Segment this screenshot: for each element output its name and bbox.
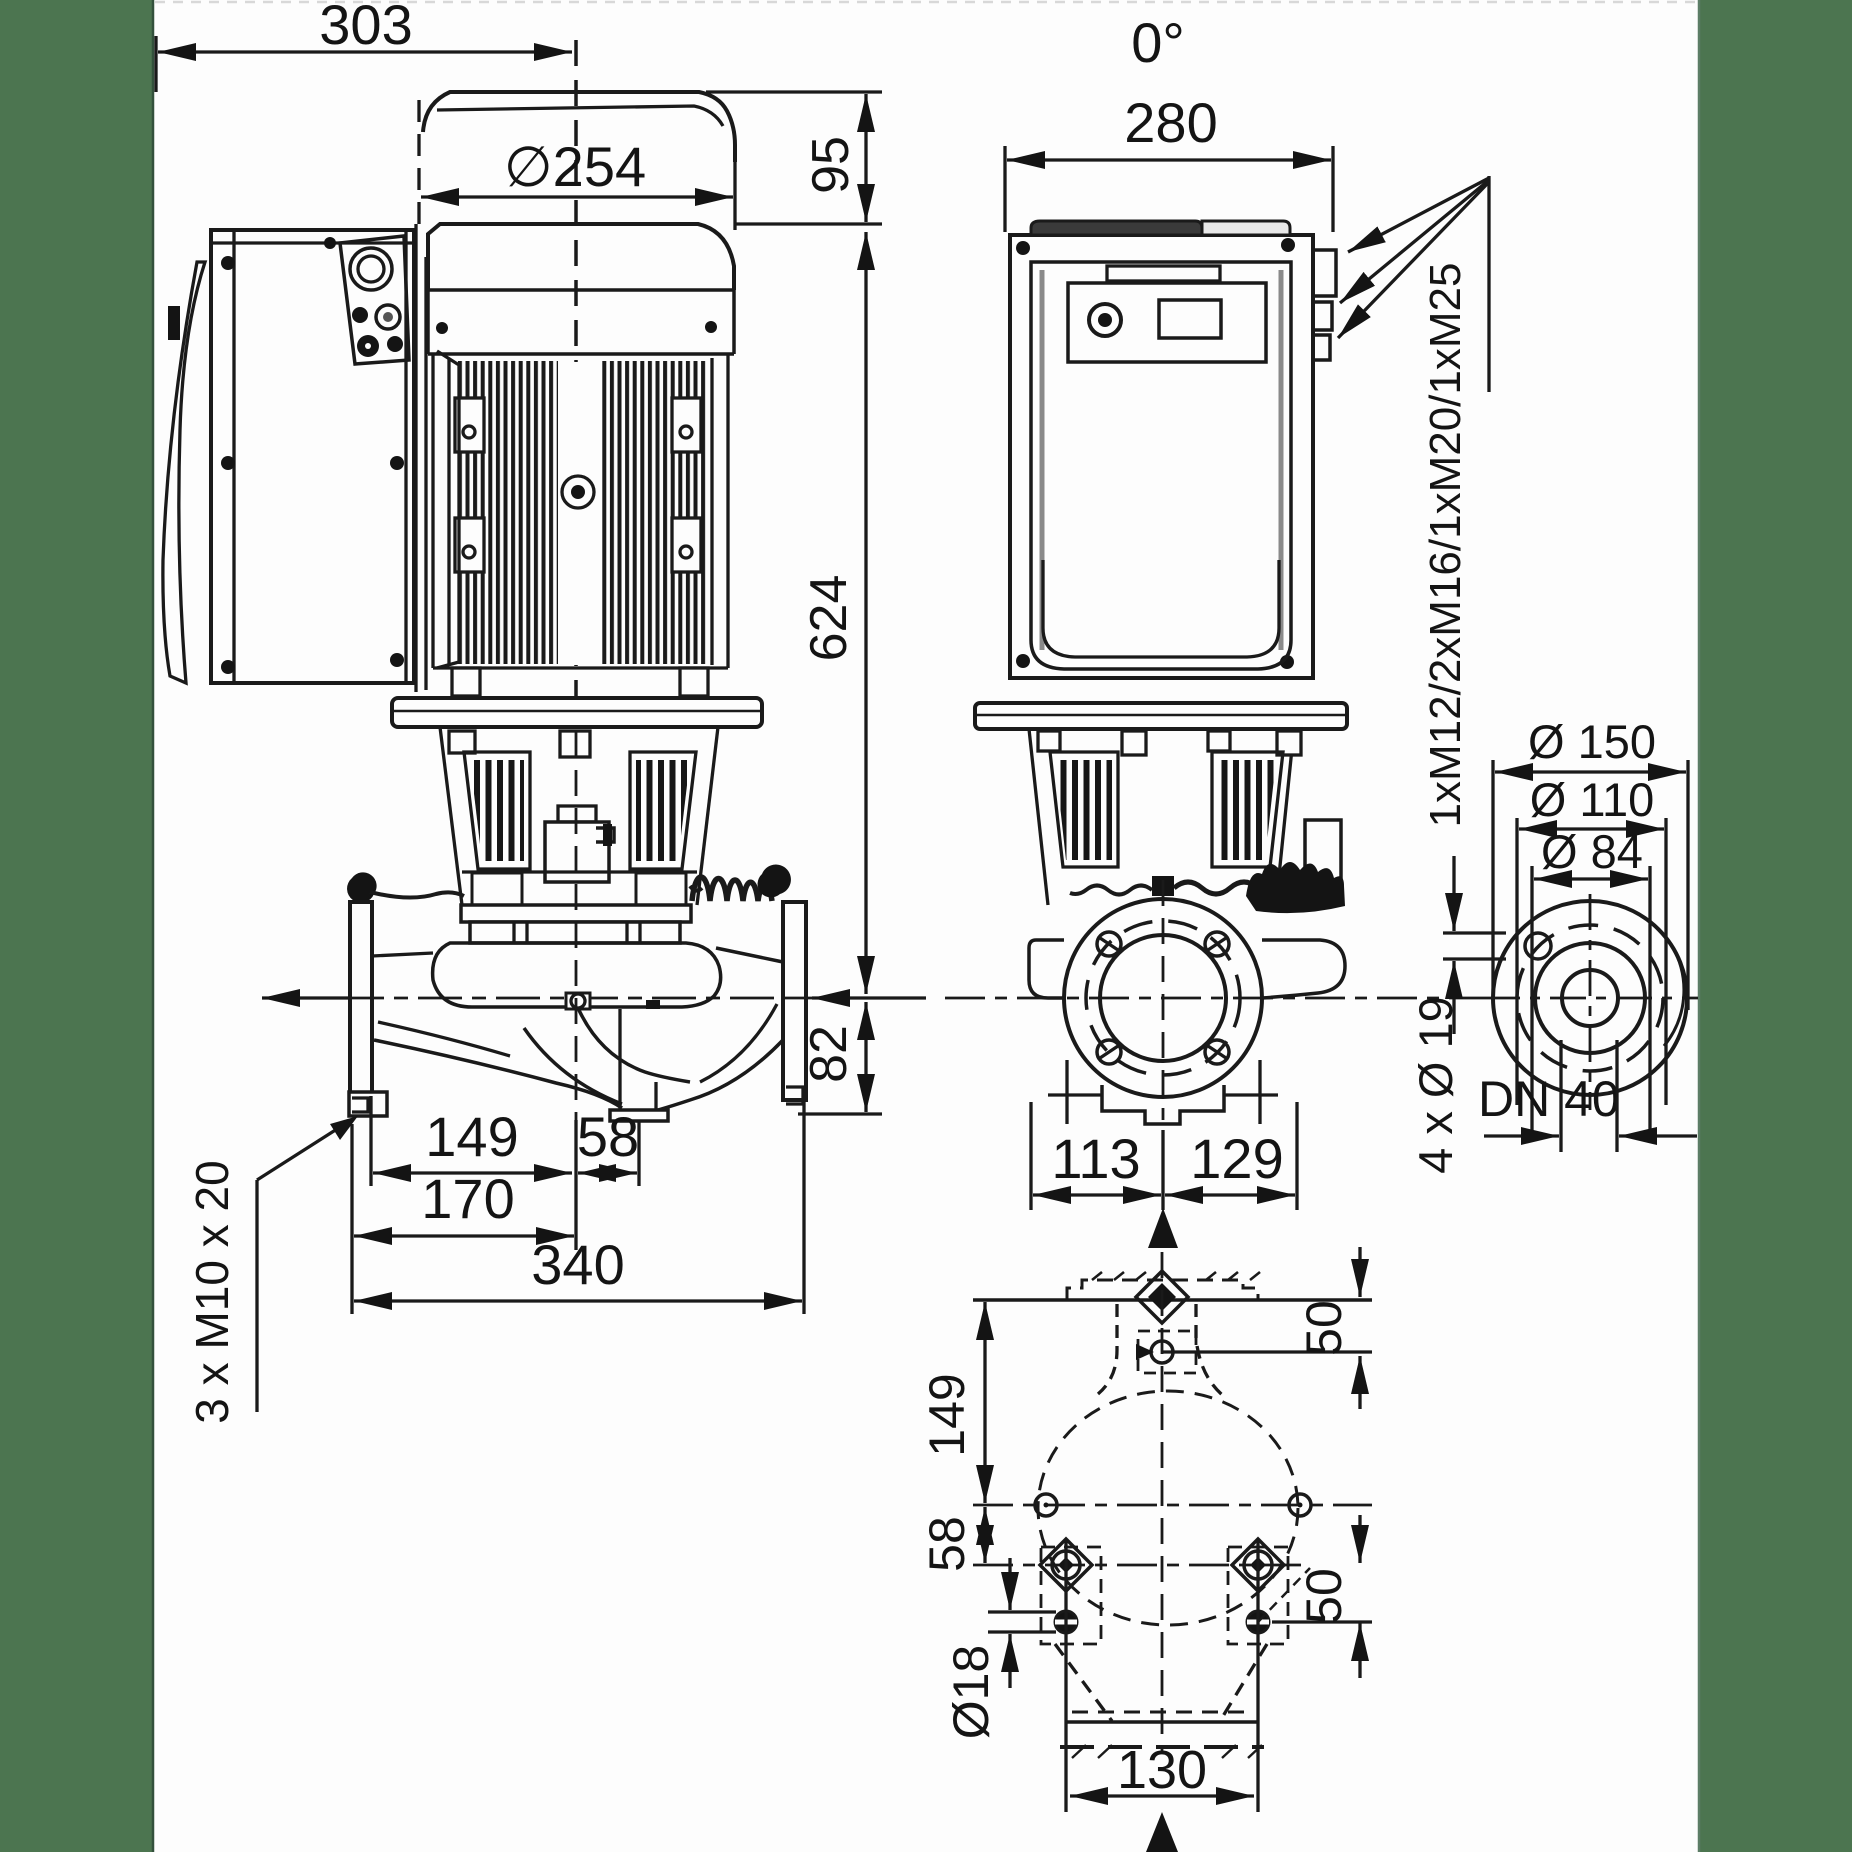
svg-text:Ø 84: Ø 84 bbox=[1541, 825, 1643, 878]
svg-text:50: 50 bbox=[1296, 1568, 1352, 1624]
svg-text:0°: 0° bbox=[1131, 11, 1185, 74]
svg-text:82: 82 bbox=[800, 1025, 858, 1083]
svg-text:58: 58 bbox=[919, 1516, 975, 1572]
svg-text:∅254: ∅254 bbox=[504, 135, 646, 198]
svg-text:Ø18: Ø18 bbox=[943, 1645, 999, 1740]
svg-text:149: 149 bbox=[919, 1373, 975, 1456]
svg-text:Ø 150: Ø 150 bbox=[1528, 715, 1656, 768]
svg-text:340: 340 bbox=[531, 1233, 624, 1296]
svg-text:Ø 110: Ø 110 bbox=[1530, 773, 1655, 826]
svg-text:280: 280 bbox=[1124, 91, 1217, 154]
svg-text:129: 129 bbox=[1190, 1127, 1283, 1190]
svg-text:624: 624 bbox=[800, 575, 858, 662]
svg-text:303: 303 bbox=[319, 0, 412, 56]
svg-text:50: 50 bbox=[1296, 1300, 1352, 1356]
svg-text:1xM12/2xM16/1xM20/1xM25: 1xM12/2xM16/1xM20/1xM25 bbox=[1421, 263, 1470, 828]
svg-text:4 x Ø 19: 4 x Ø 19 bbox=[1409, 996, 1462, 1174]
svg-text:95: 95 bbox=[802, 136, 860, 194]
svg-text:DN 40: DN 40 bbox=[1478, 1071, 1620, 1127]
svg-text:58: 58 bbox=[577, 1105, 639, 1168]
svg-text:130: 130 bbox=[1117, 1740, 1207, 1800]
svg-text:3 x M10 x 20: 3 x M10 x 20 bbox=[186, 1160, 238, 1423]
svg-text:113: 113 bbox=[1051, 1127, 1140, 1190]
svg-text:170: 170 bbox=[421, 1167, 514, 1230]
svg-text:149: 149 bbox=[425, 1105, 518, 1168]
